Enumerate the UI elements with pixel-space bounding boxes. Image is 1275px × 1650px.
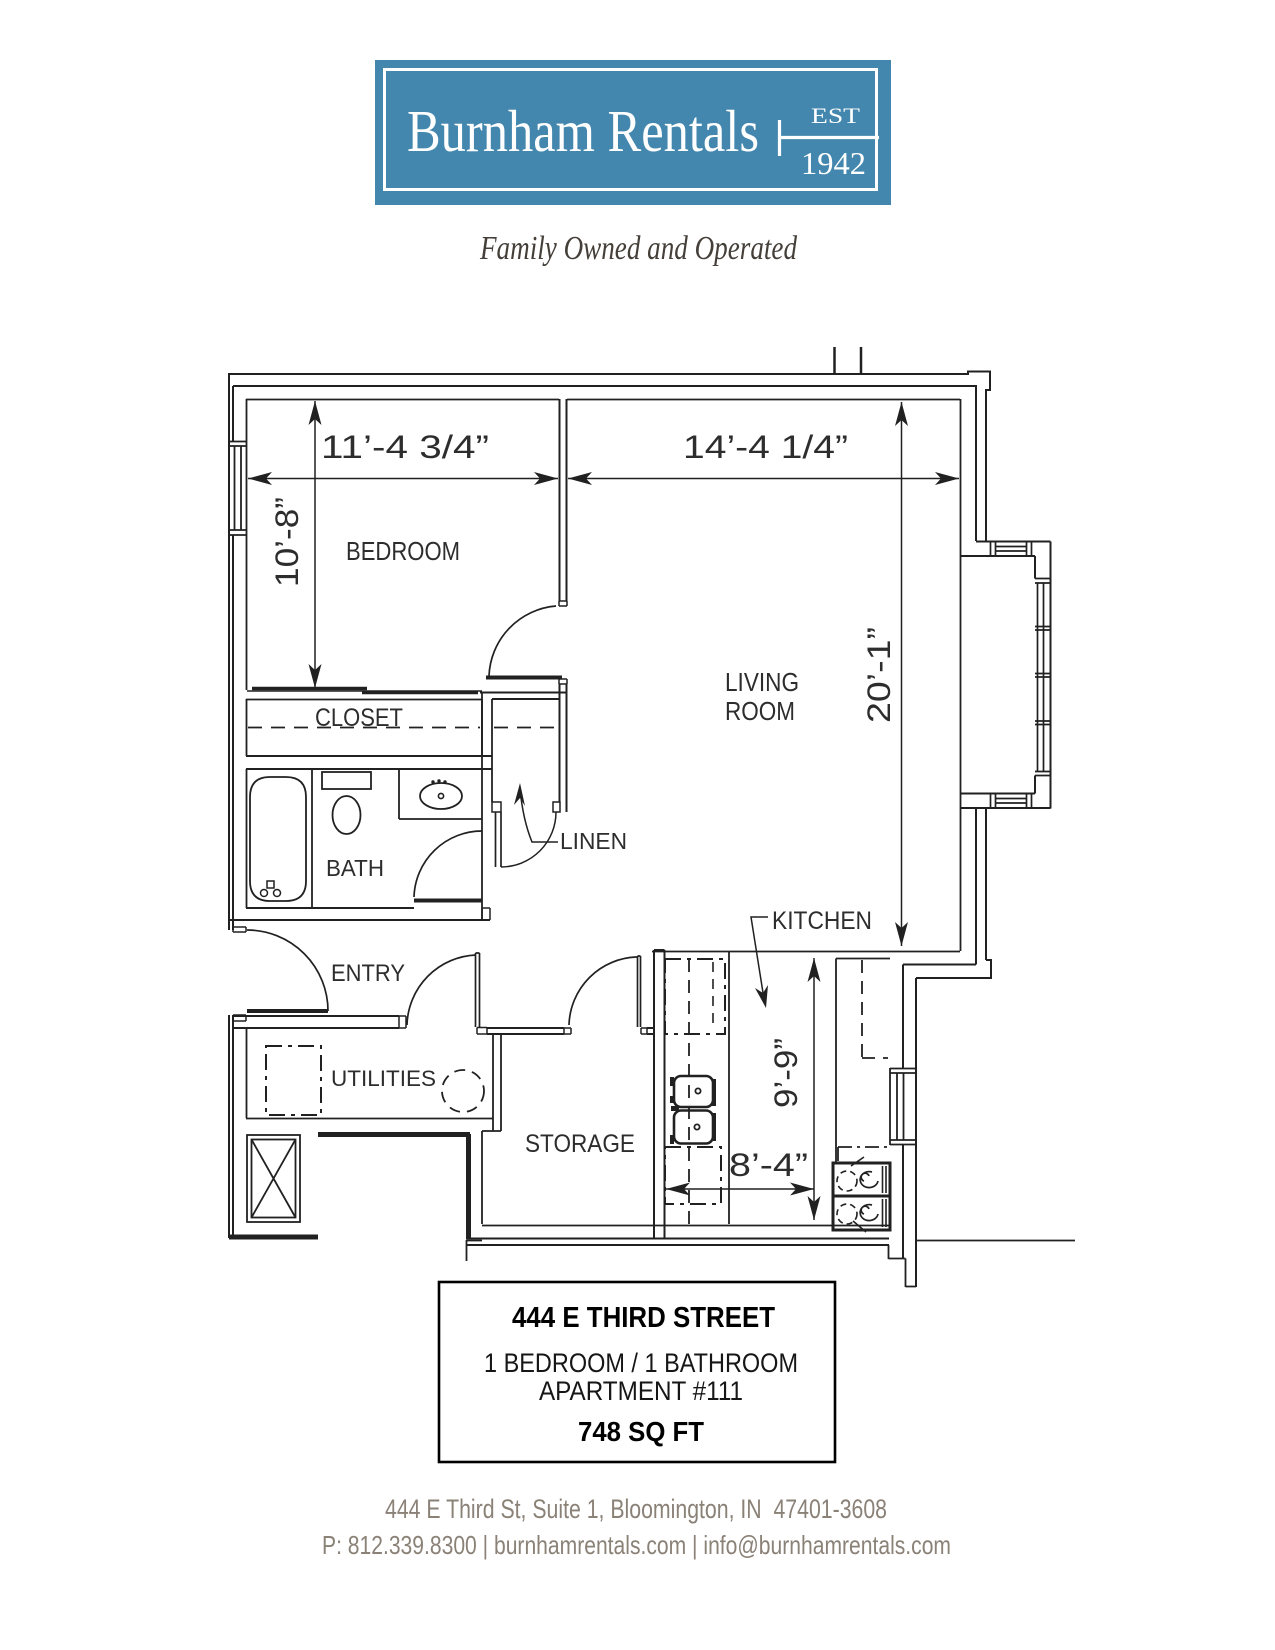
svg-text:KITCHEN: KITCHEN bbox=[772, 907, 872, 935]
svg-text:20’-1”: 20’-1” bbox=[861, 627, 897, 723]
svg-text:9’-9”: 9’-9” bbox=[768, 1038, 804, 1108]
svg-text:1 BEDROOM / 1 BATHROOM: 1 BEDROOM / 1 BATHROOM bbox=[484, 1348, 798, 1378]
svg-text:LIVING: LIVING bbox=[725, 667, 799, 697]
svg-text:748 SQ FT: 748 SQ FT bbox=[578, 1416, 704, 1447]
svg-text:11’-4 3/4”: 11’-4 3/4” bbox=[321, 429, 489, 465]
svg-text:APARTMENT #111: APARTMENT #111 bbox=[539, 1376, 743, 1406]
svg-text:10’-8”: 10’-8” bbox=[269, 497, 305, 587]
svg-text:ENTRY: ENTRY bbox=[331, 960, 405, 987]
svg-text:CLOSET: CLOSET bbox=[315, 704, 403, 732]
svg-text:8’-4”: 8’-4” bbox=[729, 1147, 808, 1183]
svg-text:14’-4 1/4”: 14’-4 1/4” bbox=[683, 429, 848, 465]
svg-text:P: 812.339.8300 | burnhamrenta: P: 812.339.8300 | burnhamrentals.com | i… bbox=[322, 1530, 951, 1560]
svg-text:BEDROOM: BEDROOM bbox=[346, 536, 460, 566]
svg-text:444 E THIRD STREET: 444 E THIRD STREET bbox=[512, 1302, 775, 1334]
svg-text:BATH: BATH bbox=[326, 855, 384, 881]
svg-text:444 E Third St, Suite 1, Bloom: 444 E Third St, Suite 1, Bloomington, IN… bbox=[385, 1494, 887, 1524]
svg-text:STORAGE: STORAGE bbox=[525, 1130, 635, 1158]
svg-text:LINEN: LINEN bbox=[560, 828, 627, 854]
svg-text:ROOM: ROOM bbox=[725, 696, 795, 726]
svg-text:UTILITIES: UTILITIES bbox=[331, 1066, 436, 1091]
